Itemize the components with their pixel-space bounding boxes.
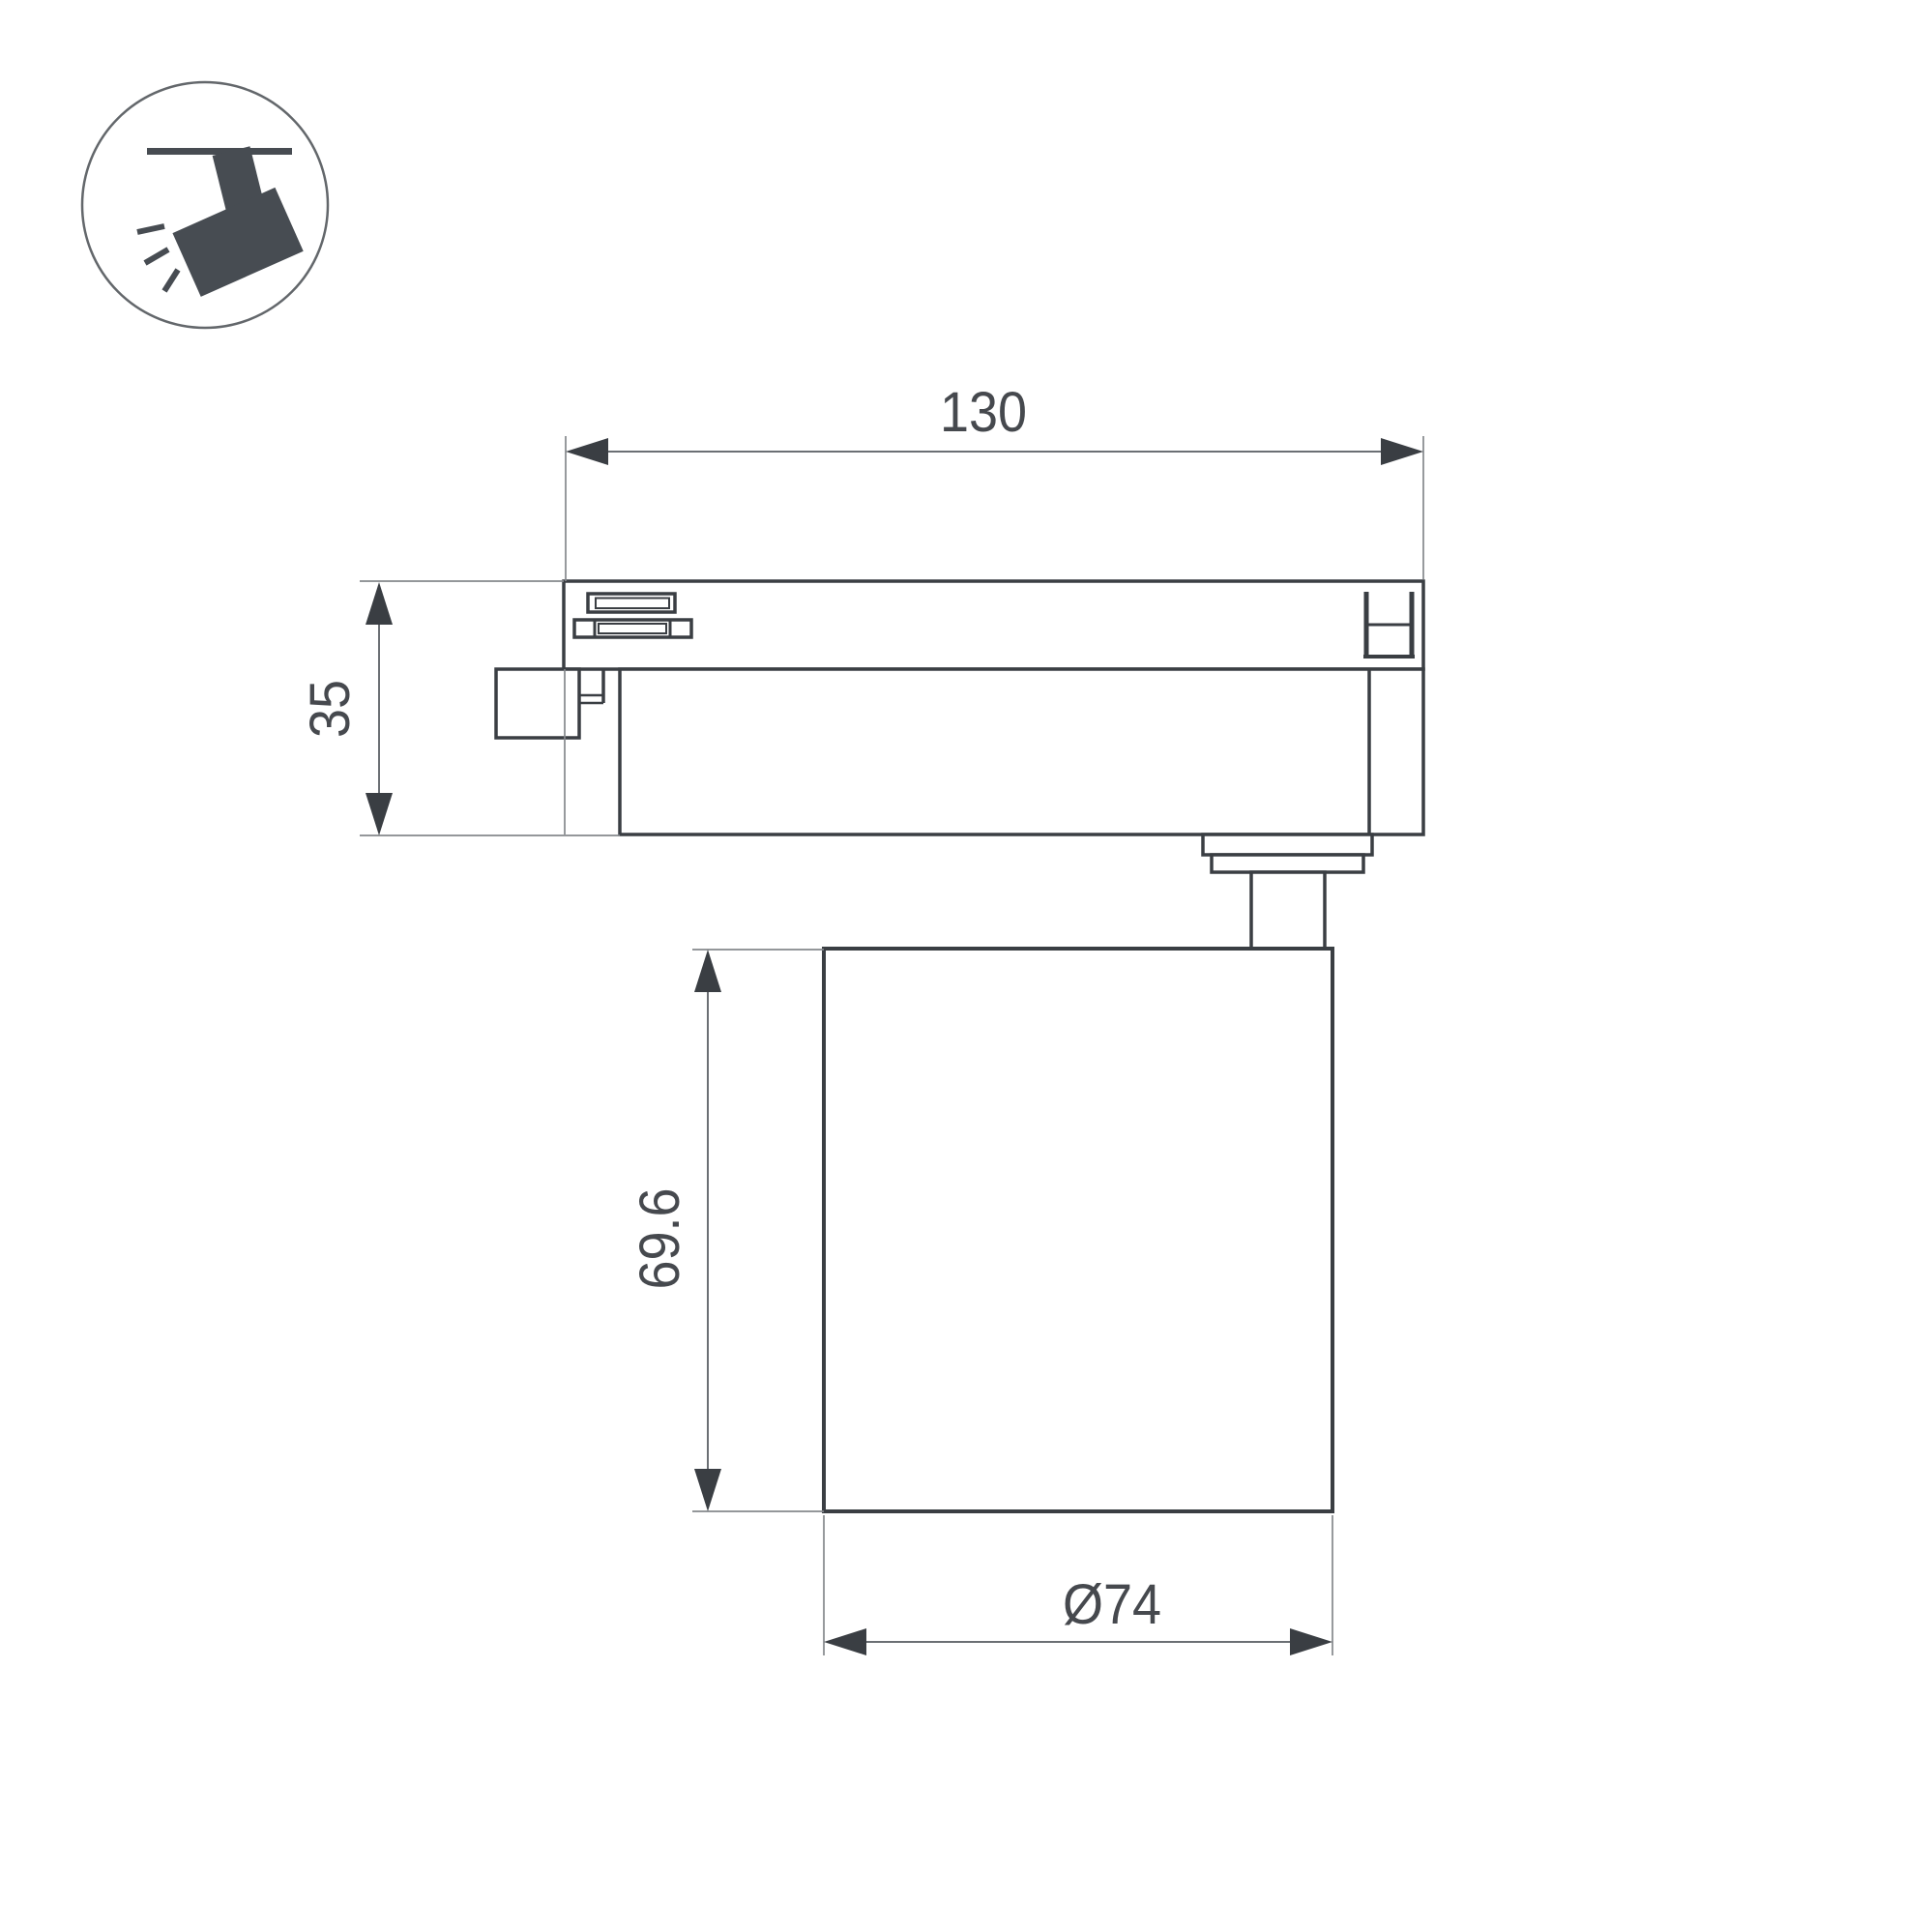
neck-step-1: [1203, 834, 1372, 855]
dimension-drawing-page: 130 35 69.6 Ø74: [0, 0, 1932, 1932]
adapter-notch: [579, 670, 603, 703]
dim-width-label: 130: [940, 385, 1027, 441]
technical-drawing: [0, 0, 1932, 1932]
dim-diameter-label: Ø74: [1063, 1577, 1161, 1633]
mounting-neck: [1251, 872, 1325, 949]
dim-adapter-height-label: 35: [303, 680, 359, 738]
dim-body-height-label: 69.6: [632, 1188, 688, 1290]
neck-step-2: [1212, 855, 1363, 872]
adapter-side-tab: [496, 669, 579, 738]
adapter-lower-housing: [620, 669, 1423, 834]
lamp-body-outline: [824, 949, 1332, 1511]
